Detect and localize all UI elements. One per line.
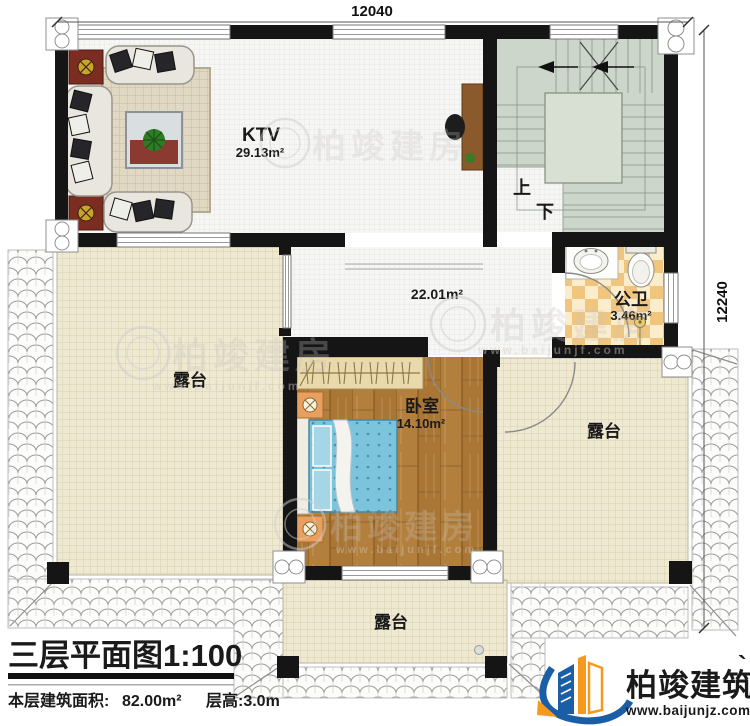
logo: 柏竣建筑 ` www.baijunjz.com [537, 650, 750, 721]
stairs-down-label: 下 [536, 202, 554, 222]
dimension-right-value: 12240 [714, 281, 731, 323]
pillar [277, 656, 299, 678]
pillar [485, 656, 507, 678]
window [117, 233, 230, 247]
coffee-table [126, 112, 182, 168]
pillar [47, 562, 69, 584]
watermark-text: 柏竣建房 [330, 508, 478, 545]
dimension-top: 12040 [52, 3, 693, 27]
bed [297, 418, 397, 514]
sliding-door [283, 255, 291, 328]
terrace-drain [475, 646, 484, 655]
watermark-text: 柏竣建房 [172, 335, 336, 376]
logo-url: www.baijunjz.com [625, 703, 750, 718]
logo-tick: ` [738, 650, 747, 680]
watermark-url: www.baijunjf.com [335, 544, 477, 556]
floorplan-page: KTV 29.13m² 22.01m² 公卫 3.46m² 卧室 14.10m²… [0, 0, 750, 726]
stairs-up-label: 上 [513, 178, 531, 198]
toilet [626, 243, 656, 287]
window [78, 25, 230, 39]
floorplan-drawing: KTV 29.13m² 22.01m² 公卫 3.46m² 卧室 14.10m²… [0, 0, 750, 726]
terrace-bottom-label: 露台 [374, 612, 408, 632]
sliding-door [342, 566, 448, 580]
watermark-text: 柏竣建房 [490, 305, 654, 346]
window [664, 273, 678, 323]
bedroom-area: 14.10m² [397, 416, 446, 431]
plan-area-label: 本层建筑面积: [8, 691, 109, 710]
logo-brand: 柏竣建筑 [626, 668, 750, 703]
watermark-url: www.baijunjf.com [477, 343, 628, 357]
plan-title: 三层平面图1:100 [8, 638, 242, 673]
window [333, 25, 445, 39]
plan-height-label: 层高:3.0m [206, 691, 280, 710]
terrace-right-floor [497, 358, 688, 583]
nightstand [297, 516, 323, 542]
terrace-left-floor [57, 247, 283, 575]
watermark-url: www.baijunjf.com [151, 379, 302, 393]
plan-area-value: 82.00m² [122, 693, 182, 710]
window [550, 25, 618, 39]
dimension-top-value: 12040 [351, 3, 393, 20]
table-lamp [78, 59, 94, 75]
logo-icon [537, 655, 630, 721]
table-lamp [78, 205, 94, 221]
bedroom-label: 卧室 [405, 396, 439, 416]
watermark-text: 柏竣建房 [312, 127, 468, 166]
terrace-right-label: 露台 [587, 421, 621, 441]
nightstand [297, 392, 323, 418]
stair-landing [545, 93, 622, 183]
hall-area: 22.01m² [411, 286, 463, 302]
pillar [669, 561, 692, 584]
